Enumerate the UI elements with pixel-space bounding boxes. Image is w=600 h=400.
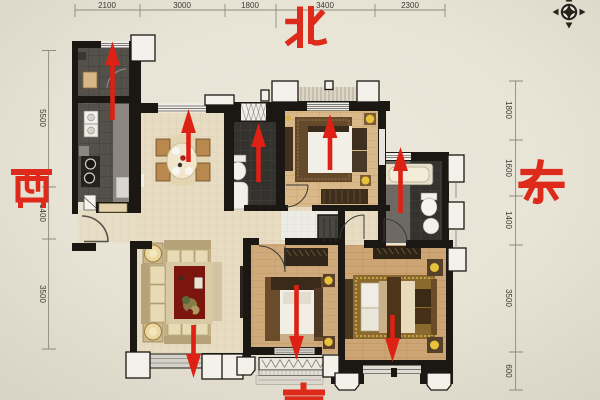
- svg-text:3500: 3500: [504, 289, 513, 307]
- svg-text:600: 600: [504, 364, 513, 378]
- svg-text:2100: 2100: [98, 1, 116, 10]
- svg-text:2300: 2300: [401, 1, 419, 10]
- svg-text:3500: 3500: [38, 285, 47, 303]
- svg-text:5500: 5500: [38, 109, 47, 127]
- svg-text:3000: 3000: [173, 1, 191, 10]
- svg-text:1400: 1400: [504, 211, 513, 229]
- svg-text:1800: 1800: [241, 1, 259, 10]
- svg-text:3400: 3400: [316, 1, 334, 10]
- svg-text:1600: 1600: [504, 159, 513, 177]
- svg-text:1800: 1800: [504, 101, 513, 119]
